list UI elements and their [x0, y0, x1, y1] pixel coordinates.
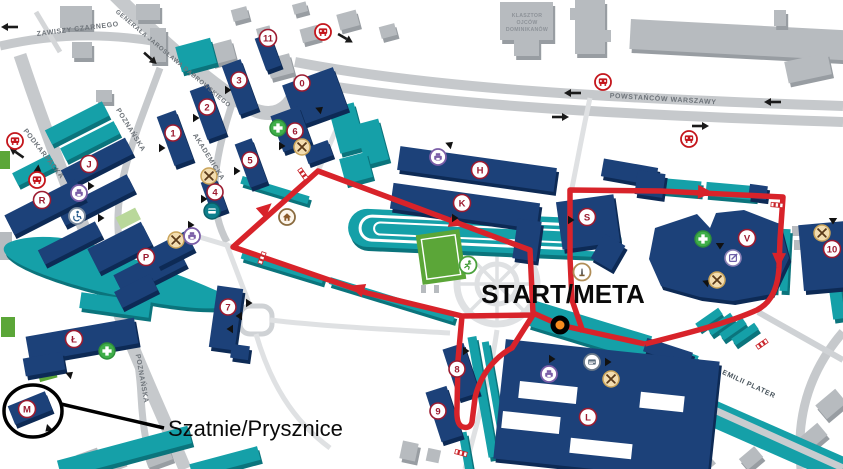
building-badge-L-stroke: Ł [66, 331, 83, 348]
house-icon [279, 209, 295, 225]
building-badge-2: 2 [199, 99, 215, 115]
building-badge-J: J [81, 156, 98, 173]
bus-stop-icon [681, 131, 697, 147]
monastery-label: KLASZTOR [512, 13, 543, 19]
building-badge-7: 7 [220, 299, 236, 315]
building-badge-P: P [138, 249, 155, 266]
building-badge-K: K [454, 195, 471, 212]
building-badge-M: M [19, 401, 36, 418]
print-point-icon [184, 228, 200, 244]
svg-text:7: 7 [225, 302, 230, 313]
bus-stop-icon [7, 133, 23, 149]
food-point-icon [603, 371, 619, 387]
building-badge-4: 4 [207, 184, 223, 200]
food-point-icon [168, 232, 184, 248]
building-badge-6: 6 [287, 123, 303, 139]
campus-route-map: 0 1 2 3 4 5 6 7 8 9 10 11 H K S V L J R … [0, 0, 843, 469]
print-point-icon [430, 149, 446, 165]
svg-text:4: 4 [212, 187, 218, 198]
svg-text:Ł: Ł [71, 334, 77, 345]
start-finish-label: START/META [481, 279, 645, 309]
svg-text:9: 9 [435, 406, 440, 417]
svg-text:8: 8 [454, 364, 459, 375]
lockers-label: Szatnie/Prysznice [168, 416, 343, 441]
svg-text:P: P [143, 252, 150, 263]
building-badge-S: S [579, 209, 596, 226]
svg-text:10: 10 [827, 244, 838, 255]
first-aid-icon [99, 343, 115, 359]
svg-text:M: M [23, 404, 31, 415]
svg-text:J: J [86, 159, 91, 170]
registration-icon [725, 250, 741, 266]
building-badge-11: 11 [260, 30, 277, 47]
svg-text:6: 6 [292, 126, 297, 137]
building-badge-5: 5 [242, 152, 258, 168]
building-badge-H: H [472, 162, 489, 179]
svg-text:DOMINIKANÓW: DOMINIKANÓW [506, 25, 548, 33]
print-point-icon [71, 185, 87, 201]
wheelchair-access-icon [69, 208, 85, 224]
building-badge-V: V [739, 230, 756, 247]
bus-stop-icon [29, 172, 45, 188]
monument-icon [574, 264, 591, 281]
building-badge-1: 1 [165, 125, 181, 141]
svg-text:S: S [584, 212, 590, 223]
svg-text:L: L [585, 412, 591, 423]
svg-text:H: H [477, 165, 484, 176]
svg-text:2: 2 [204, 102, 209, 113]
bus-stop-icon [595, 74, 611, 90]
svg-text:OJCÓW: OJCÓW [516, 18, 537, 26]
svg-text:1: 1 [170, 128, 176, 139]
first-aid-icon [270, 120, 286, 136]
sports-icon [460, 257, 477, 274]
svg-text:R: R [39, 195, 46, 206]
bus-stop-icon [315, 24, 331, 40]
svg-text:5: 5 [247, 155, 253, 166]
svg-text:0: 0 [299, 78, 304, 89]
atm-icon [204, 203, 220, 219]
building-badge-3: 3 [231, 72, 247, 88]
svg-text:V: V [744, 233, 751, 244]
map-canvas: 0 1 2 3 4 5 6 7 8 9 10 11 H K S V L J R … [0, 0, 843, 469]
start-finish-marker [553, 318, 567, 332]
food-point-icon [709, 272, 725, 288]
first-aid-icon [695, 231, 711, 247]
building-badge-8: 8 [449, 361, 465, 377]
print-point-icon [541, 366, 557, 382]
building-badge-0: 0 [294, 75, 310, 91]
building-badge-R: R [34, 192, 51, 209]
food-point-icon [814, 225, 830, 241]
building-badge-10: 10 [824, 241, 841, 258]
svg-text:11: 11 [263, 33, 274, 44]
building-badge-9: 9 [430, 403, 446, 419]
svg-text:K: K [459, 198, 466, 209]
svg-text:3: 3 [236, 75, 241, 86]
building-badge-L: L [580, 409, 597, 426]
atm-icon [584, 354, 600, 370]
food-point-icon [294, 139, 310, 155]
